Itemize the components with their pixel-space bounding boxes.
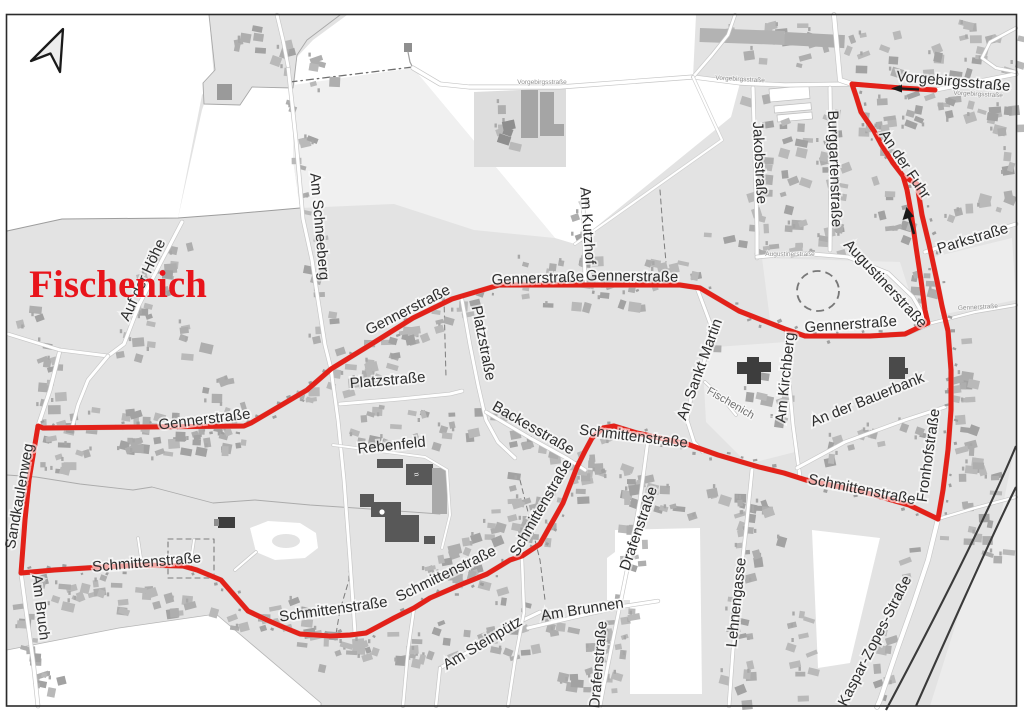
- svg-text:Augustinerstraße: Augustinerstraße: [765, 251, 815, 258]
- svg-text:Vorgebirgsstraße: Vorgebirgsstraße: [517, 79, 567, 86]
- svg-text:Gennerstraße: Gennerstraße: [586, 267, 679, 286]
- svg-text:Fischenich: Fischenich: [29, 263, 207, 306]
- svg-text:Gennerstraße: Gennerstraße: [491, 268, 584, 288]
